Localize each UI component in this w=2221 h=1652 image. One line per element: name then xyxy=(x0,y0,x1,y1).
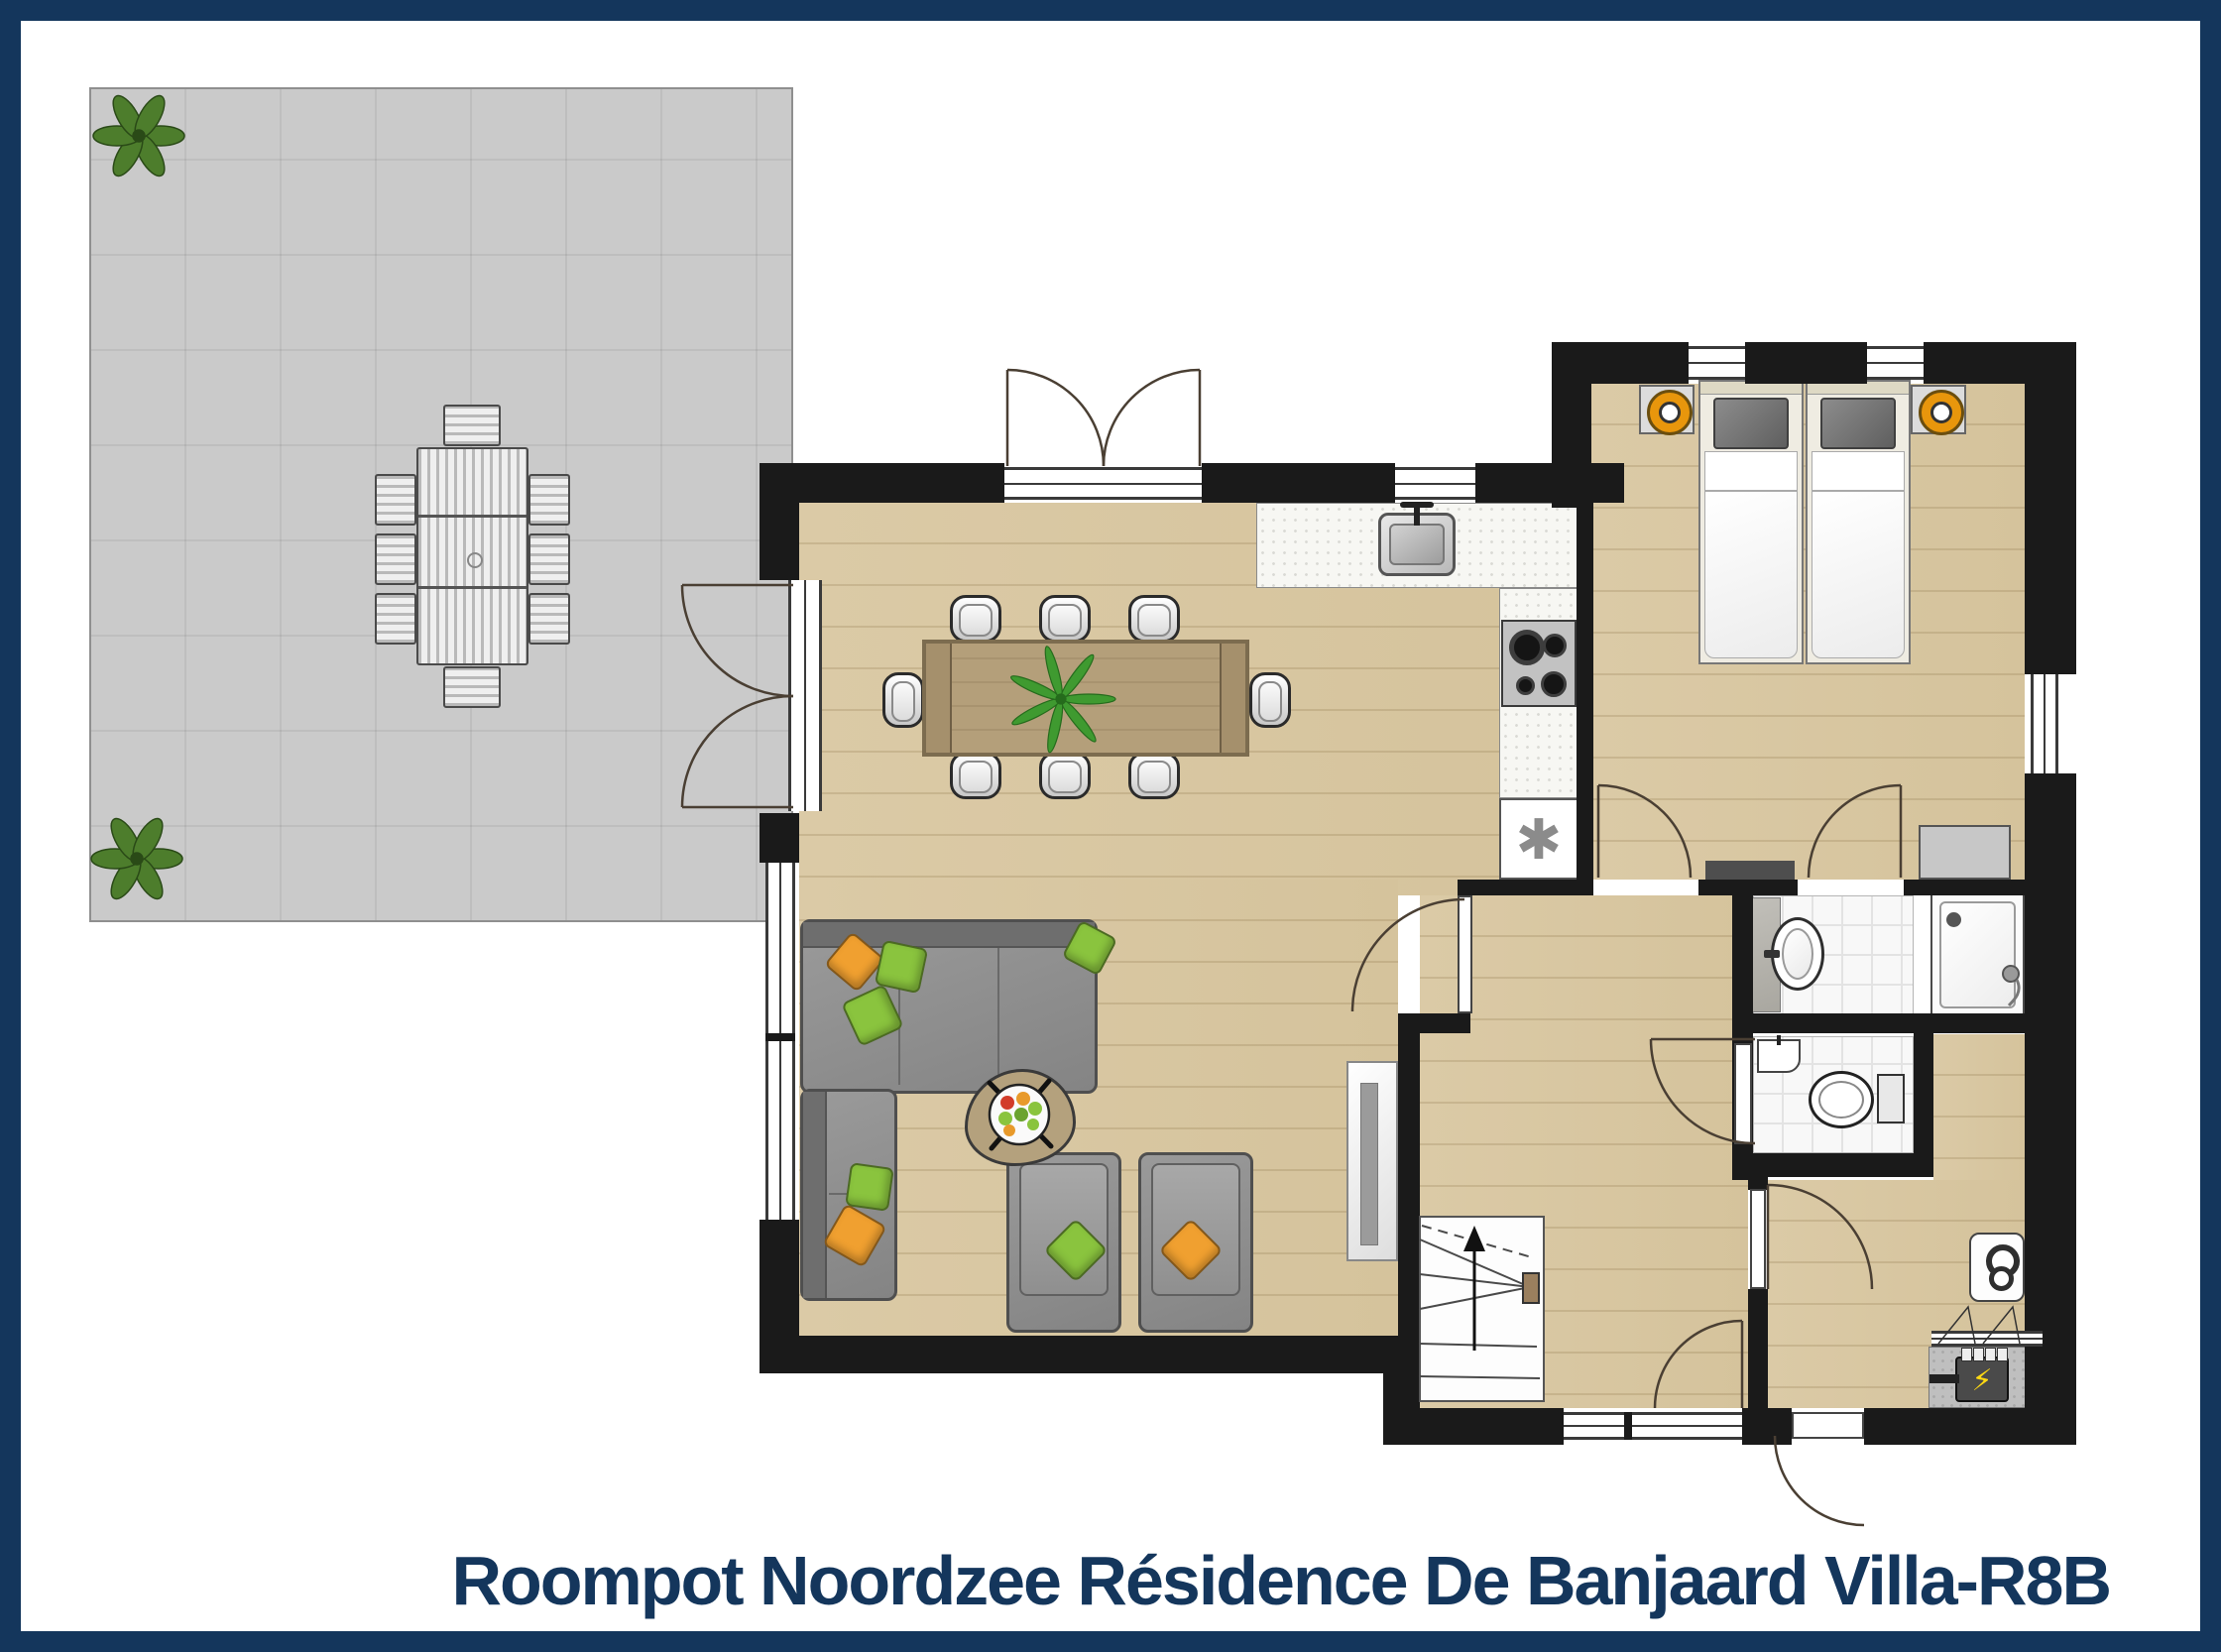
wall xyxy=(760,1220,799,1373)
detail xyxy=(1137,604,1171,637)
detail xyxy=(1541,671,1567,697)
window-mullion xyxy=(765,1033,795,1041)
dining-chair xyxy=(1249,672,1291,728)
detail xyxy=(1220,644,1245,753)
stove xyxy=(1501,620,1577,707)
pipe xyxy=(1929,1374,1959,1383)
window xyxy=(1395,467,1475,500)
wall xyxy=(760,813,799,863)
floor-plan: ✱⚡ xyxy=(0,0,2221,1652)
freezer: ✱ xyxy=(1499,798,1578,880)
window xyxy=(2031,674,2058,773)
wall xyxy=(1475,463,1624,503)
window-mullion xyxy=(1624,1412,1632,1440)
dining-chair xyxy=(882,672,924,728)
floor-utility xyxy=(1933,1034,2025,1180)
toilet-bowl xyxy=(1809,1071,1874,1128)
detail xyxy=(1543,634,1567,657)
outdoor-chair xyxy=(375,533,416,585)
wall xyxy=(760,1336,1416,1373)
entrance-door-leaf xyxy=(1792,1412,1864,1439)
dining-chair xyxy=(1039,595,1091,643)
window xyxy=(1931,1331,2043,1347)
detail xyxy=(1704,491,1798,658)
shower xyxy=(1930,892,2025,1017)
window xyxy=(1004,467,1202,500)
tv xyxy=(1346,1061,1398,1261)
wall xyxy=(1398,1013,1470,1033)
door-mat xyxy=(1705,861,1795,881)
wall xyxy=(1458,880,1593,895)
toilet-tank xyxy=(1877,1074,1905,1123)
dining-chair xyxy=(1128,595,1180,643)
stairs xyxy=(1420,1217,1544,1401)
wall xyxy=(1742,1408,1792,1445)
boiler xyxy=(1969,1233,2025,1302)
freezer-symbol: ✱ xyxy=(1501,800,1577,878)
detail xyxy=(803,1092,827,1298)
outdoor-chair xyxy=(528,474,570,526)
detail xyxy=(1400,502,1434,508)
outdoor-table xyxy=(416,447,528,665)
wall xyxy=(1748,1289,1768,1408)
detail xyxy=(418,515,526,518)
french-door-arc xyxy=(1007,370,1104,466)
door-jamb xyxy=(1750,1189,1766,1289)
detail xyxy=(1812,451,1905,491)
bed xyxy=(1698,380,1804,664)
frame-border-bottom xyxy=(0,1631,2221,1652)
wall xyxy=(1732,1013,2025,1033)
wall xyxy=(1383,1373,1416,1445)
washbasin xyxy=(1771,917,1824,991)
detail xyxy=(1997,1348,2008,1361)
detail xyxy=(1812,491,1905,658)
wall xyxy=(1552,342,1591,508)
detail xyxy=(1973,1348,1984,1361)
wall xyxy=(1745,342,1867,384)
detail xyxy=(926,644,952,753)
detail xyxy=(1137,761,1171,793)
detail xyxy=(1985,1348,1996,1361)
detail xyxy=(1777,1035,1781,1045)
wall xyxy=(1748,1153,1768,1190)
detail xyxy=(1704,451,1798,491)
dining-table xyxy=(922,640,1249,757)
window xyxy=(765,863,795,1220)
toilet-sink xyxy=(1757,1039,1801,1073)
outdoor-chair xyxy=(443,666,501,708)
detail xyxy=(959,604,993,637)
wall xyxy=(1202,463,1395,503)
detail xyxy=(1713,398,1789,449)
dining-chair xyxy=(1128,752,1180,799)
entrance-door-arc xyxy=(1775,1436,1864,1525)
kitchen-sink xyxy=(1378,513,1456,576)
lamp-icon xyxy=(1647,390,1693,435)
wall xyxy=(1577,503,1593,895)
detail xyxy=(1961,1348,1972,1361)
outdoor-chair xyxy=(443,405,501,446)
dining-chair xyxy=(950,752,1001,799)
frame-border-left xyxy=(0,0,21,1652)
window xyxy=(1867,346,1924,380)
cushion xyxy=(845,1162,894,1212)
detail xyxy=(959,761,993,793)
outdoor-chair xyxy=(375,474,416,526)
dining-chair xyxy=(950,595,1001,643)
electric-meter-symbol: ⚡ xyxy=(1971,1363,1992,1398)
detail xyxy=(1989,1266,2014,1291)
detail xyxy=(418,586,526,589)
wall xyxy=(1914,1013,1933,1153)
detail xyxy=(1258,681,1282,722)
detail xyxy=(1659,402,1681,423)
outdoor-chair xyxy=(528,593,570,645)
detail xyxy=(997,948,999,1085)
detail xyxy=(1946,912,1961,927)
detail xyxy=(1509,630,1545,665)
window xyxy=(1564,1412,1742,1440)
dining-chair xyxy=(1039,752,1091,799)
detail xyxy=(1764,950,1780,958)
detail xyxy=(467,552,483,568)
detail xyxy=(1818,1081,1864,1119)
outdoor-chair xyxy=(528,533,570,585)
nightstand xyxy=(1911,385,1966,434)
wall xyxy=(760,463,799,580)
detail xyxy=(1048,761,1082,793)
lamp-icon xyxy=(1919,390,1964,435)
wall xyxy=(1698,880,1798,895)
frame-border-right xyxy=(2200,0,2221,1652)
frame-border-top xyxy=(0,0,2221,21)
terrace-door-sill xyxy=(788,580,822,811)
outdoor-chair xyxy=(375,593,416,645)
detail xyxy=(1360,1083,1378,1245)
door-jamb xyxy=(1734,1043,1752,1144)
detail xyxy=(1516,676,1535,695)
wall xyxy=(1398,1013,1420,1408)
detail xyxy=(891,681,915,722)
door-leaf xyxy=(1458,895,1472,1013)
plan-title: Roompot Noordzee Résidence De Banjaard V… xyxy=(40,1535,2110,1626)
dresser xyxy=(1919,825,2011,880)
detail xyxy=(1820,398,1896,449)
window xyxy=(1689,346,1745,380)
detail xyxy=(1048,604,1082,637)
electric-meter: ⚡ xyxy=(1955,1357,2009,1402)
detail xyxy=(1930,402,1952,423)
detail xyxy=(1782,928,1813,980)
bed xyxy=(1806,380,1911,664)
nightstand xyxy=(1639,385,1695,434)
french-door-arc xyxy=(1104,370,1200,466)
detail xyxy=(1389,524,1445,565)
wall xyxy=(2025,342,2076,674)
